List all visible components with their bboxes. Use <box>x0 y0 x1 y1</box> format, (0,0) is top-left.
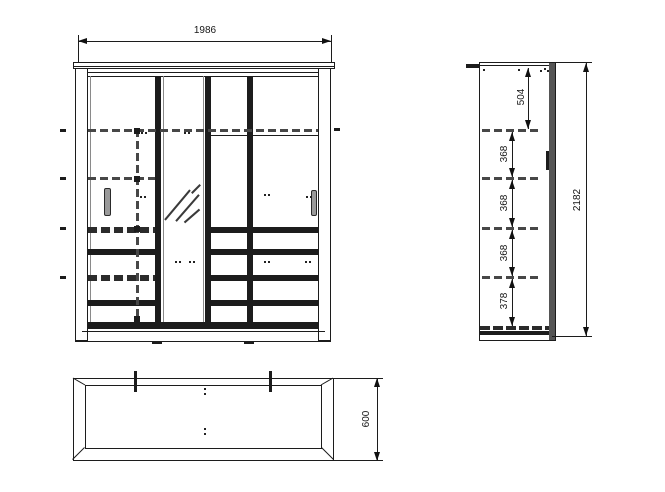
dimension-arrow <box>374 452 380 461</box>
plan-inner-bottom <box>85 448 322 449</box>
wardrobe-technical-drawing: 1986 <box>0 0 665 492</box>
plan-inner-left <box>85 385 86 449</box>
plan-inner-top <box>85 385 322 386</box>
door-track-tick <box>134 371 137 392</box>
plan-inner-right <box>321 385 322 449</box>
depth-dimension-label: 600 <box>362 410 372 429</box>
screw-marks <box>204 388 206 390</box>
screw-marks <box>204 428 206 430</box>
dimension-arrow <box>374 378 380 387</box>
depth-dimension-line <box>377 378 378 461</box>
door-track-tick <box>269 371 272 392</box>
plan-view: 600 <box>0 0 665 492</box>
